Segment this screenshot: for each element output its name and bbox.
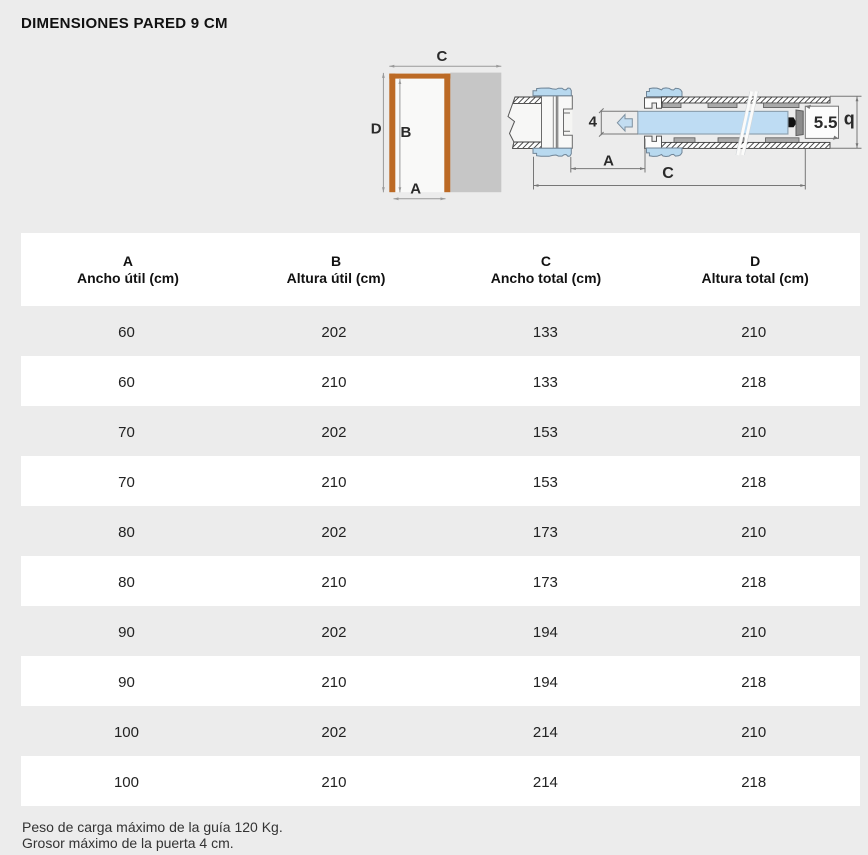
- svg-text:A: A: [603, 153, 614, 170]
- svg-text:C: C: [436, 48, 447, 65]
- svg-text:D: D: [371, 121, 382, 138]
- svg-text:5.5: 5.5: [814, 113, 838, 132]
- svg-text:C: C: [662, 165, 674, 182]
- svg-text:q: q: [844, 109, 855, 129]
- svg-text:B: B: [400, 124, 411, 141]
- svg-text:4: 4: [589, 114, 598, 131]
- svg-text:A: A: [410, 180, 421, 197]
